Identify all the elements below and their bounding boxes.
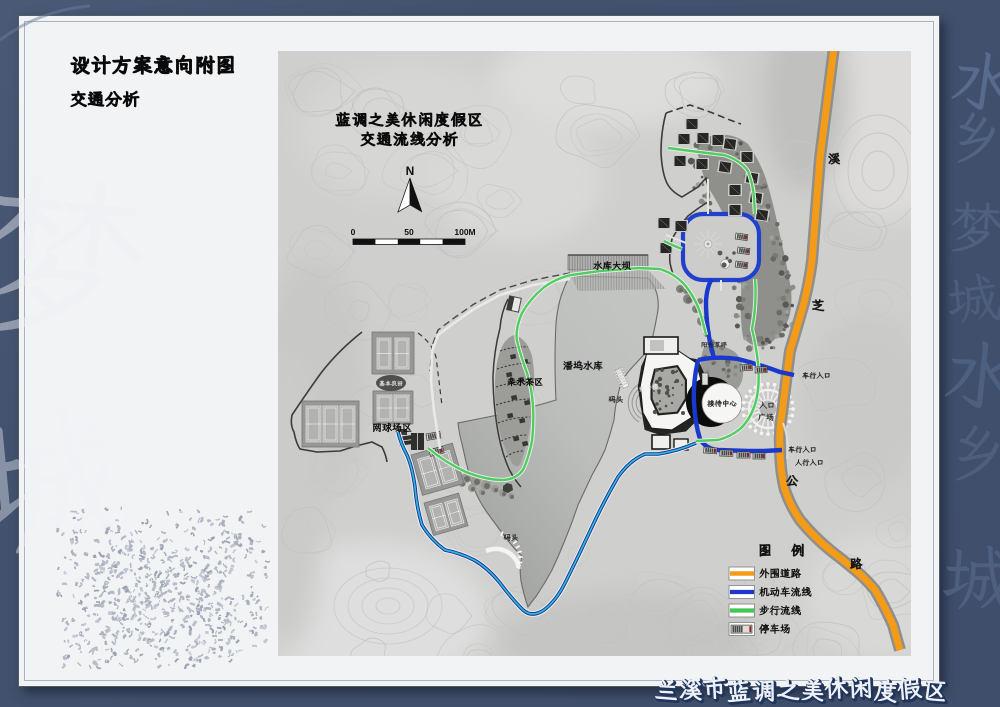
svg-text:100M: 100M [454, 227, 475, 237]
svg-text:N: N [406, 164, 415, 178]
svg-text:0: 0 [351, 227, 356, 237]
svg-text:50: 50 [404, 227, 414, 237]
